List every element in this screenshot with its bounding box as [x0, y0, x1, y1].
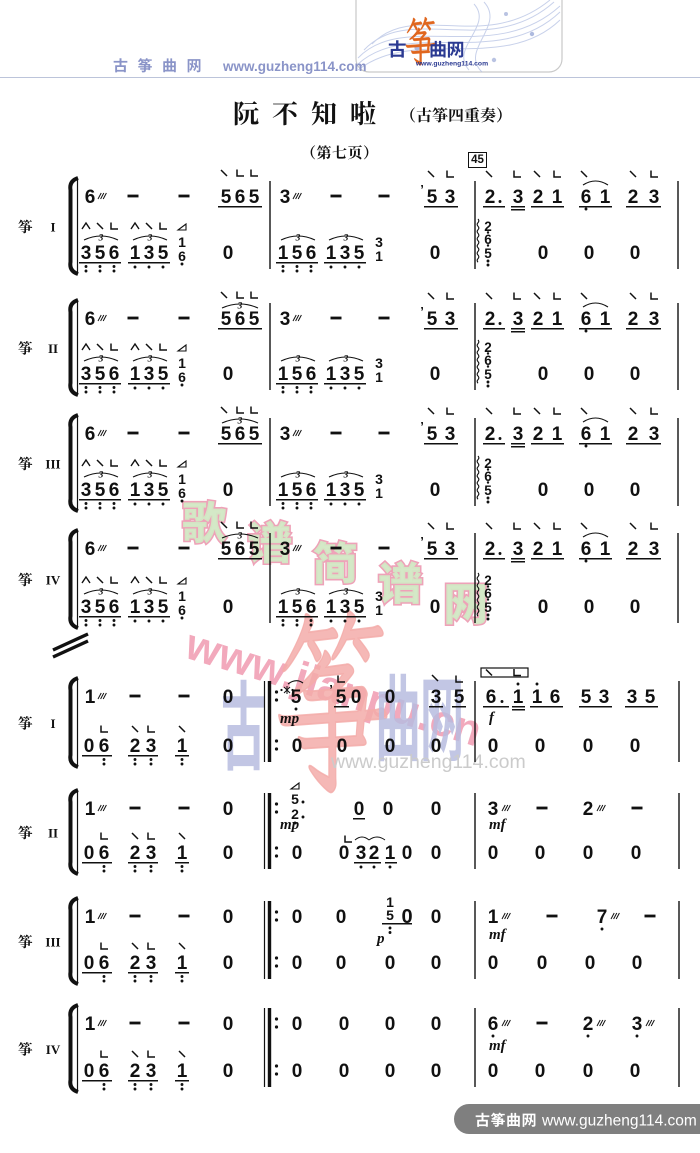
svg-text:2: 2	[533, 187, 544, 208]
svg-text:2: 2	[628, 187, 639, 208]
svg-text:1: 1	[130, 243, 141, 264]
svg-text:6: 6	[109, 597, 120, 618]
svg-text:1: 1	[326, 243, 337, 264]
svg-text:0: 0	[488, 1061, 499, 1082]
svg-text:5: 5	[95, 480, 106, 501]
svg-text:5: 5	[354, 243, 365, 264]
svg-text:p: p	[375, 931, 385, 947]
svg-text:1: 1	[488, 907, 499, 928]
svg-text:6: 6	[306, 480, 317, 501]
svg-text:6: 6	[178, 248, 186, 264]
svg-text:5: 5	[95, 243, 106, 264]
svg-text:3: 3	[343, 234, 349, 244]
svg-text:1: 1	[326, 364, 337, 385]
svg-text:6: 6	[109, 364, 120, 385]
svg-text:3: 3	[445, 309, 456, 330]
svg-text:5: 5	[427, 309, 438, 330]
svg-text:0: 0	[336, 907, 347, 928]
svg-text:0: 0	[431, 1061, 442, 1082]
svg-text:1: 1	[278, 243, 289, 264]
svg-text:3: 3	[98, 355, 104, 365]
svg-text:2: 2	[369, 843, 380, 864]
svg-text:0: 0	[583, 843, 594, 864]
svg-text:0: 0	[537, 953, 548, 974]
svg-text:5: 5	[354, 364, 365, 385]
svg-text:5: 5	[158, 597, 169, 618]
svg-text:3: 3	[147, 355, 153, 365]
svg-text:3: 3	[81, 597, 92, 618]
svg-text:3: 3	[280, 309, 291, 330]
svg-text:0: 0	[337, 736, 348, 757]
svg-text:3: 3	[445, 187, 456, 208]
svg-text:3: 3	[295, 234, 301, 244]
svg-text:0: 0	[488, 736, 499, 757]
svg-text:5: 5	[336, 687, 347, 708]
svg-text:5: 5	[427, 424, 438, 445]
svg-text:0: 0	[385, 687, 396, 708]
svg-text:6: 6	[99, 843, 110, 864]
svg-text:3: 3	[146, 1061, 157, 1082]
svg-text:5: 5	[427, 539, 438, 560]
svg-text:0: 0	[84, 953, 95, 974]
svg-text:3: 3	[144, 243, 155, 264]
svg-text:1: 1	[177, 843, 188, 864]
svg-text:5: 5	[386, 907, 394, 923]
svg-text:3: 3	[98, 471, 104, 481]
svg-text:1: 1	[130, 364, 141, 385]
svg-text:3: 3	[147, 234, 153, 244]
svg-text:3: 3	[513, 309, 524, 330]
svg-text:I: I	[50, 220, 55, 235]
svg-text:6: 6	[306, 243, 317, 264]
svg-text:0: 0	[223, 736, 234, 757]
svg-text:1: 1	[326, 480, 337, 501]
svg-text:1: 1	[552, 187, 563, 208]
svg-text:0: 0	[385, 736, 396, 757]
svg-text:1: 1	[600, 539, 611, 560]
svg-text:1: 1	[130, 597, 141, 618]
svg-text:0: 0	[223, 243, 234, 264]
svg-text:3: 3	[98, 234, 104, 244]
svg-text:6: 6	[109, 243, 120, 264]
svg-text:0: 0	[630, 243, 641, 264]
svg-text:II: II	[48, 341, 58, 356]
svg-text:5: 5	[158, 243, 169, 264]
svg-text:5: 5	[292, 597, 303, 618]
svg-text:5: 5	[249, 539, 260, 560]
svg-text:2: 2	[583, 799, 594, 820]
svg-text:3: 3	[81, 364, 92, 385]
svg-text:0: 0	[630, 364, 641, 385]
svg-text:’: ’	[420, 304, 424, 319]
svg-text:0: 0	[538, 597, 549, 618]
svg-text:5: 5	[221, 187, 232, 208]
svg-text:0: 0	[430, 243, 441, 264]
svg-text:3: 3	[343, 471, 349, 481]
svg-text:2: 2	[485, 187, 496, 208]
svg-text:0: 0	[584, 243, 595, 264]
svg-text:1: 1	[130, 480, 141, 501]
svg-text:0: 0	[223, 1061, 234, 1082]
svg-text:1: 1	[513, 687, 524, 708]
svg-text:3: 3	[81, 243, 92, 264]
svg-text:f: f	[489, 710, 496, 726]
svg-text:3: 3	[649, 539, 660, 560]
svg-text:0: 0	[583, 1061, 594, 1082]
svg-text:2: 2	[628, 539, 639, 560]
svg-text:5: 5	[427, 187, 438, 208]
svg-text:3: 3	[280, 539, 291, 560]
svg-text:0: 0	[223, 953, 234, 974]
svg-text:1: 1	[600, 424, 611, 445]
svg-text:0: 0	[223, 907, 234, 928]
svg-text:6: 6	[235, 539, 246, 560]
svg-text:6: 6	[306, 597, 317, 618]
svg-text:3: 3	[295, 588, 301, 598]
svg-text:III: III	[45, 935, 60, 950]
svg-text:2: 2	[130, 953, 141, 974]
svg-text:2: 2	[130, 843, 141, 864]
svg-text:0: 0	[535, 736, 546, 757]
svg-text:3: 3	[295, 471, 301, 481]
svg-text:1: 1	[85, 1014, 96, 1035]
svg-text:6: 6	[235, 309, 246, 330]
svg-text:mp: mp	[280, 817, 300, 833]
svg-text:3: 3	[237, 302, 243, 312]
svg-text:mp: mp	[280, 711, 300, 727]
svg-text:0: 0	[535, 1061, 546, 1082]
svg-text:0: 0	[292, 843, 303, 864]
svg-text:1: 1	[552, 309, 563, 330]
svg-text:0: 0	[632, 953, 643, 974]
svg-text:3: 3	[237, 417, 243, 427]
svg-text:0: 0	[488, 953, 499, 974]
svg-text:0: 0	[431, 953, 442, 974]
svg-text:’: ’	[329, 682, 333, 697]
svg-text:6: 6	[85, 187, 96, 208]
svg-text:5: 5	[249, 309, 260, 330]
svg-text:6: 6	[581, 424, 592, 445]
svg-text:0: 0	[538, 243, 549, 264]
svg-text:5: 5	[354, 597, 365, 618]
svg-text:1: 1	[385, 843, 396, 864]
svg-text:1: 1	[532, 687, 543, 708]
svg-text:mf: mf	[489, 817, 508, 833]
svg-text:1: 1	[552, 424, 563, 445]
svg-text:6: 6	[550, 687, 561, 708]
svg-text:3: 3	[649, 309, 660, 330]
svg-text:0: 0	[223, 687, 234, 708]
svg-text:3: 3	[146, 843, 157, 864]
svg-text:3: 3	[144, 480, 155, 501]
svg-text:5: 5	[454, 687, 465, 708]
svg-text:0: 0	[292, 953, 303, 974]
svg-text:6: 6	[306, 364, 317, 385]
svg-text:IV: IV	[46, 573, 61, 588]
svg-text:3: 3	[356, 843, 367, 864]
svg-text:3: 3	[295, 355, 301, 365]
svg-text:0: 0	[585, 953, 596, 974]
svg-text:3: 3	[237, 532, 243, 542]
svg-text:0: 0	[339, 843, 350, 864]
svg-text:IV: IV	[46, 1042, 61, 1057]
svg-text:1: 1	[375, 485, 383, 501]
svg-text:0: 0	[630, 736, 641, 757]
svg-text:0: 0	[336, 953, 347, 974]
svg-text:2: 2	[533, 539, 544, 560]
svg-text:6: 6	[99, 1061, 110, 1082]
svg-text:0: 0	[631, 843, 642, 864]
svg-text:0: 0	[402, 843, 413, 864]
svg-text:3: 3	[513, 424, 524, 445]
svg-text:II: II	[48, 826, 58, 841]
svg-text:0: 0	[292, 1014, 303, 1035]
svg-text:1: 1	[600, 309, 611, 330]
svg-text:3: 3	[649, 424, 660, 445]
svg-text:6: 6	[99, 953, 110, 974]
svg-text:0: 0	[630, 480, 641, 501]
svg-text:1: 1	[85, 799, 96, 820]
svg-text:1: 1	[278, 364, 289, 385]
svg-text:0: 0	[84, 1061, 95, 1082]
svg-text:5: 5	[291, 791, 299, 807]
svg-text:0: 0	[339, 1061, 350, 1082]
svg-text:6: 6	[581, 309, 592, 330]
svg-text:7: 7	[597, 907, 608, 928]
svg-text:3: 3	[632, 1014, 643, 1035]
svg-text:6: 6	[85, 539, 96, 560]
svg-text:3: 3	[627, 687, 638, 708]
svg-text:2: 2	[628, 309, 639, 330]
svg-text:0: 0	[385, 1061, 396, 1082]
svg-text:3: 3	[147, 588, 153, 598]
svg-text:5: 5	[484, 483, 492, 498]
svg-text:2: 2	[583, 1014, 594, 1035]
svg-text:6: 6	[488, 1014, 499, 1035]
svg-text:www.guzheng114.com: www.guzheng114.com	[541, 1113, 697, 1130]
svg-text:2: 2	[485, 539, 496, 560]
svg-text:5: 5	[354, 480, 365, 501]
svg-text:2: 2	[485, 309, 496, 330]
svg-text:3: 3	[340, 597, 351, 618]
svg-text:’: ’	[420, 534, 424, 549]
svg-text:3: 3	[599, 687, 610, 708]
svg-text:0: 0	[430, 597, 441, 618]
svg-text:0: 0	[223, 597, 234, 618]
svg-text:mf: mf	[489, 927, 508, 943]
svg-text:1: 1	[278, 480, 289, 501]
svg-text:6: 6	[178, 485, 186, 501]
svg-text:0: 0	[223, 1014, 234, 1035]
svg-text:3: 3	[340, 364, 351, 385]
svg-text:1: 1	[177, 736, 188, 757]
svg-text:5: 5	[95, 597, 106, 618]
svg-text:3: 3	[445, 539, 456, 560]
svg-text:5: 5	[292, 364, 303, 385]
svg-text:6: 6	[581, 539, 592, 560]
svg-text:0: 0	[385, 953, 396, 974]
svg-text:3: 3	[513, 187, 524, 208]
svg-text:3: 3	[98, 588, 104, 598]
svg-text:6: 6	[109, 480, 120, 501]
svg-text:0: 0	[84, 736, 95, 757]
svg-text:0: 0	[223, 364, 234, 385]
svg-text:5: 5	[581, 687, 592, 708]
svg-text:0: 0	[223, 799, 234, 820]
svg-text:I: I	[50, 716, 55, 731]
svg-text:0: 0	[584, 364, 595, 385]
svg-text:3: 3	[146, 736, 157, 757]
svg-text:1: 1	[552, 539, 563, 560]
svg-text:1: 1	[278, 597, 289, 618]
svg-text:6: 6	[85, 424, 96, 445]
svg-text:3: 3	[280, 424, 291, 445]
svg-text:1: 1	[326, 597, 337, 618]
svg-text:0: 0	[431, 907, 442, 928]
svg-text:3: 3	[513, 539, 524, 560]
svg-text:0: 0	[431, 843, 442, 864]
svg-text:0: 0	[538, 364, 549, 385]
svg-text:2: 2	[485, 424, 496, 445]
svg-text:0: 0	[538, 480, 549, 501]
svg-text:0: 0	[292, 907, 303, 928]
svg-text:0: 0	[292, 736, 303, 757]
svg-text:5: 5	[484, 246, 492, 261]
svg-text:mf: mf	[489, 1038, 508, 1054]
svg-text:3: 3	[445, 424, 456, 445]
svg-text:5: 5	[221, 539, 232, 560]
svg-text:0: 0	[431, 736, 442, 757]
svg-text:0: 0	[401, 906, 412, 928]
svg-text:6: 6	[581, 187, 592, 208]
svg-text:0: 0	[430, 480, 441, 501]
svg-text:5: 5	[158, 480, 169, 501]
svg-text:3: 3	[343, 355, 349, 365]
svg-text:2: 2	[533, 424, 544, 445]
svg-text:5: 5	[484, 600, 492, 615]
svg-text:3: 3	[147, 471, 153, 481]
svg-text:5: 5	[95, 364, 106, 385]
svg-text:3: 3	[649, 187, 660, 208]
svg-text:0: 0	[430, 364, 441, 385]
svg-text:3: 3	[431, 687, 442, 708]
svg-text:0: 0	[354, 799, 365, 820]
svg-text:0: 0	[488, 843, 499, 864]
svg-text:2: 2	[130, 1061, 141, 1082]
svg-text:1: 1	[375, 369, 383, 385]
svg-text:6: 6	[178, 602, 186, 618]
svg-text:6: 6	[486, 687, 497, 708]
svg-text:1: 1	[600, 187, 611, 208]
svg-text:5: 5	[221, 424, 232, 445]
svg-text:0: 0	[84, 843, 95, 864]
svg-text:1: 1	[85, 687, 96, 708]
svg-text:0: 0	[223, 843, 234, 864]
svg-text:5: 5	[292, 480, 303, 501]
svg-text:3: 3	[340, 480, 351, 501]
svg-text:1: 1	[375, 248, 383, 264]
svg-text:’: ’	[420, 182, 424, 197]
svg-text:0: 0	[292, 1061, 303, 1082]
svg-text:3: 3	[81, 480, 92, 501]
svg-text:5: 5	[249, 424, 260, 445]
svg-text:2: 2	[130, 736, 141, 757]
svg-text:0: 0	[630, 1061, 641, 1082]
svg-text:’: ’	[420, 419, 424, 434]
svg-text:0: 0	[431, 1014, 442, 1035]
svg-text:6: 6	[235, 187, 246, 208]
svg-text:0: 0	[431, 799, 442, 820]
svg-text:5: 5	[484, 367, 492, 382]
svg-text:5: 5	[645, 687, 656, 708]
svg-text:5: 5	[158, 364, 169, 385]
svg-text:3: 3	[340, 243, 351, 264]
svg-text:0: 0	[583, 736, 594, 757]
svg-text:5: 5	[292, 243, 303, 264]
svg-text:0: 0	[630, 597, 641, 618]
svg-text:0: 0	[584, 597, 595, 618]
svg-text:III: III	[45, 457, 60, 472]
svg-text:3: 3	[144, 597, 155, 618]
svg-text:0: 0	[535, 843, 546, 864]
svg-text:6: 6	[85, 309, 96, 330]
svg-text:1: 1	[85, 907, 96, 928]
svg-text:1: 1	[177, 1061, 188, 1082]
svg-text:3: 3	[144, 364, 155, 385]
svg-text:3: 3	[146, 953, 157, 974]
svg-text:5: 5	[221, 309, 232, 330]
svg-text:0: 0	[339, 1014, 350, 1035]
svg-text:0: 0	[383, 799, 394, 820]
svg-text:0: 0	[351, 687, 362, 708]
svg-text:2: 2	[533, 309, 544, 330]
svg-text:6: 6	[99, 736, 110, 757]
svg-text:1: 1	[177, 953, 188, 974]
svg-text:1: 1	[375, 602, 383, 618]
svg-text:6: 6	[178, 369, 186, 385]
svg-text:0: 0	[584, 480, 595, 501]
svg-text:0: 0	[385, 1014, 396, 1035]
svg-text:2: 2	[628, 424, 639, 445]
svg-text:6: 6	[235, 424, 246, 445]
svg-text:3: 3	[343, 588, 349, 598]
svg-text:0: 0	[223, 480, 234, 501]
svg-text:5: 5	[291, 687, 302, 708]
svg-text:3: 3	[280, 187, 291, 208]
svg-text:5: 5	[249, 187, 260, 208]
